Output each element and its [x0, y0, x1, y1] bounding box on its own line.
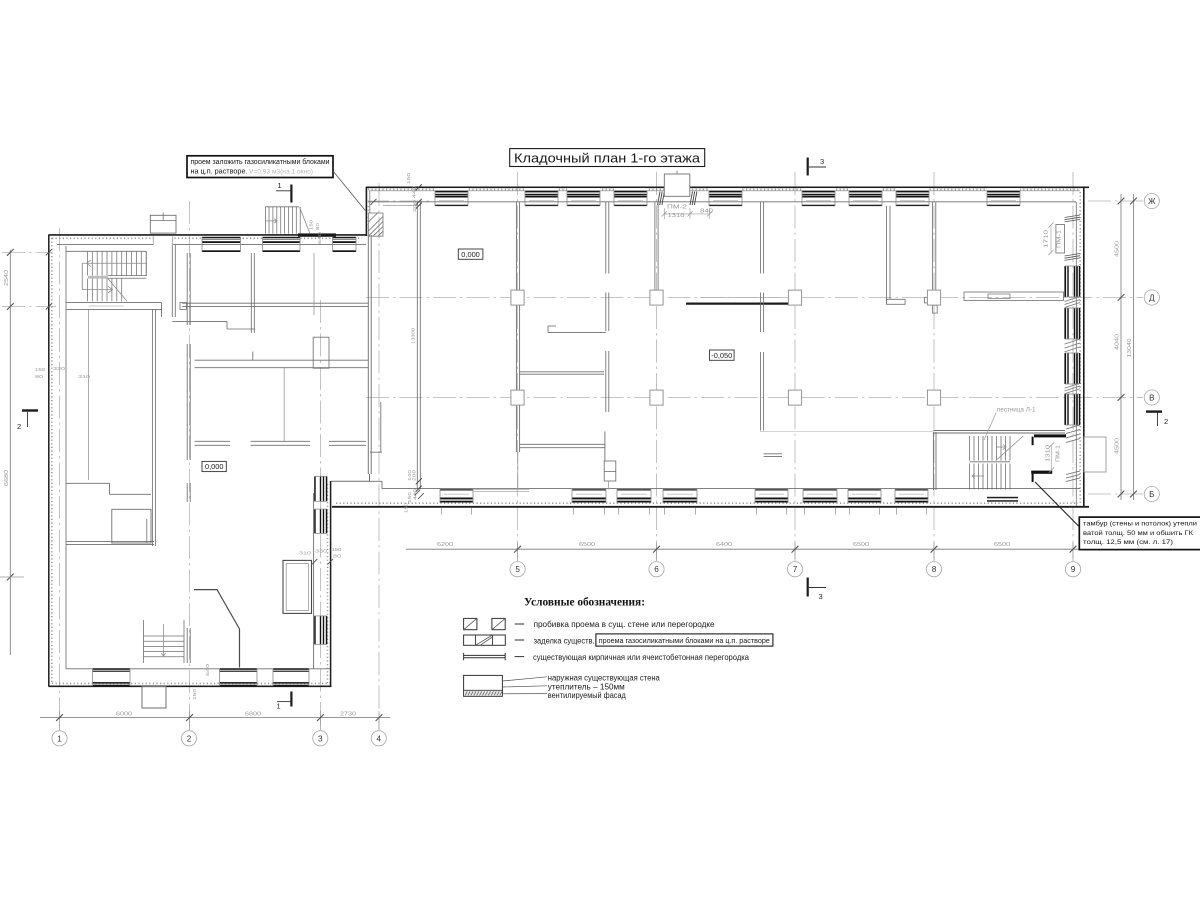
svg-text:5: 5	[515, 565, 520, 574]
svg-text:лестница Л-1: лестница Л-1	[997, 407, 1037, 414]
svg-text:ПМ-2: ПМ-2	[667, 205, 687, 211]
svg-text:150: 150	[332, 547, 343, 552]
svg-text:310: 310	[299, 551, 311, 557]
svg-text:ватой толщ. 50 мм и обшить ГК: ватой толщ. 50 мм и обшить ГК	[1083, 529, 1193, 537]
svg-text:330: 330	[315, 549, 327, 555]
svg-text:проема газосиликатными блоками: проема газосиликатными блоками на ц.п. р…	[599, 636, 770, 645]
svg-text:6500: 6500	[579, 542, 595, 548]
svg-text:вентилируемый фасад: вентилируемый фасад	[548, 691, 626, 700]
svg-text:13040: 13040	[1127, 339, 1133, 358]
svg-text:ПМ-1: ПМ-1	[1056, 445, 1062, 462]
svg-text:3: 3	[820, 157, 824, 166]
svg-text:заделка существ.: заделка существ.	[534, 637, 595, 646]
svg-text:80: 80	[35, 374, 44, 379]
svg-text:6: 6	[654, 565, 659, 574]
svg-text:200: 200	[412, 469, 417, 481]
svg-text:80: 80	[315, 222, 320, 230]
svg-text:3: 3	[819, 592, 823, 601]
svg-text:Условные обозначения:: Условные обозначения:	[524, 596, 645, 608]
svg-text:проем заложить газосиликатными: проем заложить газосиликатными блоками	[191, 158, 330, 166]
svg-text:200: 200	[412, 200, 418, 212]
svg-text:6400: 6400	[716, 542, 732, 548]
svg-text:7: 7	[793, 565, 798, 574]
svg-text:1: 1	[57, 734, 62, 743]
svg-text:на ц.п. растворе.: на ц.п. растворе.	[191, 168, 248, 175]
svg-text:2: 2	[17, 422, 21, 431]
svg-text:640: 640	[205, 664, 211, 676]
svg-text:640: 640	[317, 232, 323, 244]
svg-text:2: 2	[1164, 417, 1168, 426]
svg-text:толщ. 12,5 мм (см. л. 17): толщ. 12,5 мм (см. л. 17)	[1083, 539, 1173, 546]
svg-text:1: 1	[277, 702, 281, 711]
svg-text:6000: 6000	[116, 712, 132, 718]
svg-text:2540: 2540	[4, 270, 10, 286]
svg-text:4500: 4500	[1115, 438, 1121, 454]
svg-text:6200: 6200	[437, 542, 453, 548]
svg-text:310: 310	[78, 374, 90, 380]
svg-text:V=0,93 м3(на 1 окно): V=0,93 м3(на 1 окно)	[249, 168, 313, 175]
svg-text:4: 4	[377, 734, 382, 743]
svg-text:существующая кирпичная или яче: существующая кирпичная или ячеистобетонн…	[533, 653, 750, 662]
svg-text:4040: 4040	[1115, 334, 1121, 350]
svg-text:2730: 2730	[340, 712, 356, 718]
svg-text:6500: 6500	[994, 542, 1010, 548]
svg-text:наружная существующая стена: наружная существующая стена	[548, 673, 661, 682]
svg-text:330: 330	[53, 366, 65, 372]
svg-text:0,000: 0,000	[461, 250, 480, 259]
svg-text:ПМ-1: ПМ-1	[1057, 230, 1063, 248]
svg-text:Д: Д	[1149, 294, 1155, 303]
svg-text:Б: Б	[1149, 490, 1154, 499]
svg-text:3: 3	[318, 734, 323, 743]
svg-text:4500: 4500	[1115, 241, 1121, 257]
svg-text:тамбур (стены и потолок) утепл: тамбур (стены и потолок) утепли	[1083, 519, 1197, 527]
svg-text:150: 150	[407, 491, 412, 503]
svg-text:6800: 6800	[245, 712, 261, 718]
svg-text:0,000: 0,000	[205, 462, 224, 471]
svg-text:150: 150	[309, 219, 314, 230]
svg-text:1710: 1710	[1044, 230, 1050, 248]
svg-text:В: В	[1149, 394, 1154, 403]
svg-text:150: 150	[35, 367, 46, 372]
svg-text:8: 8	[932, 565, 937, 574]
svg-text:6500: 6500	[853, 542, 869, 548]
svg-text:80: 80	[333, 554, 342, 559]
svg-text:150: 150	[406, 172, 411, 184]
svg-text:Ж: Ж	[1148, 197, 1156, 206]
svg-text:13300: 13300	[411, 328, 417, 344]
svg-text:440: 440	[412, 186, 418, 198]
svg-text:9: 9	[1071, 565, 1076, 574]
svg-text:-0,050: -0,050	[711, 351, 732, 360]
svg-text:1: 1	[278, 181, 282, 190]
svg-text:2: 2	[187, 734, 192, 743]
svg-text:пробивка проема в сущ. стене: пробивка проема в сущ. стене или перегор…	[534, 620, 716, 629]
svg-text:1310: 1310	[1046, 445, 1052, 462]
svg-text:140: 140	[407, 469, 412, 481]
svg-text:Кладочный план 1-го этажа: Кладочный план 1-го этажа	[514, 151, 700, 165]
svg-text:150: 150	[192, 688, 197, 700]
svg-text:440: 440	[413, 488, 418, 500]
svg-text:6680: 6680	[4, 470, 10, 486]
